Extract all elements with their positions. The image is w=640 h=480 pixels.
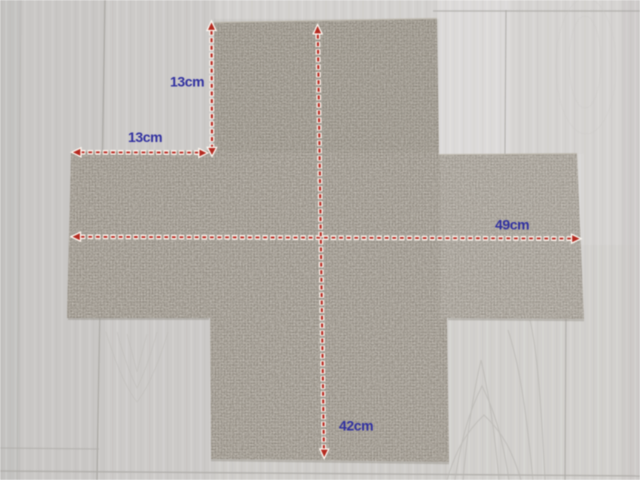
svg-text:13cm: 13cm: [170, 74, 204, 90]
svg-text:42cm: 42cm: [339, 418, 373, 434]
svg-text:13cm: 13cm: [128, 129, 162, 145]
svg-text:49cm: 49cm: [495, 217, 529, 233]
